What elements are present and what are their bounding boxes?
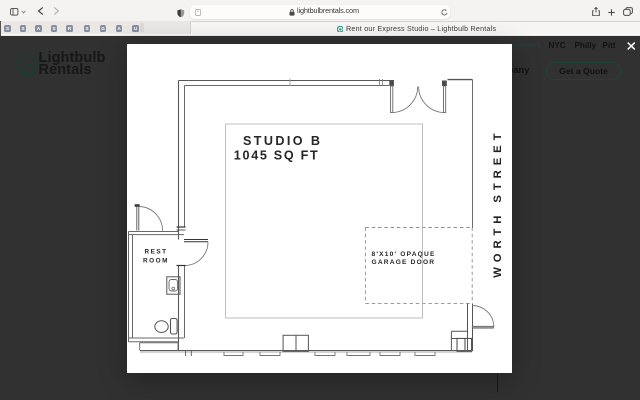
svg-text:WORTH STREET: WORTH STREET — [492, 129, 504, 278]
svg-text:STUDIO B: STUDIO B — [243, 134, 322, 148]
svg-text:REST: REST — [144, 249, 167, 256]
svg-text:GARAGE DOOR: GARAGE DOOR — [372, 259, 436, 266]
svg-text:ROOM: ROOM — [143, 258, 169, 265]
svg-text:8'X10' OPAQUE: 8'X10' OPAQUE — [372, 251, 436, 258]
svg-text:1045 SQ FT: 1045 SQ FT — [234, 148, 320, 162]
